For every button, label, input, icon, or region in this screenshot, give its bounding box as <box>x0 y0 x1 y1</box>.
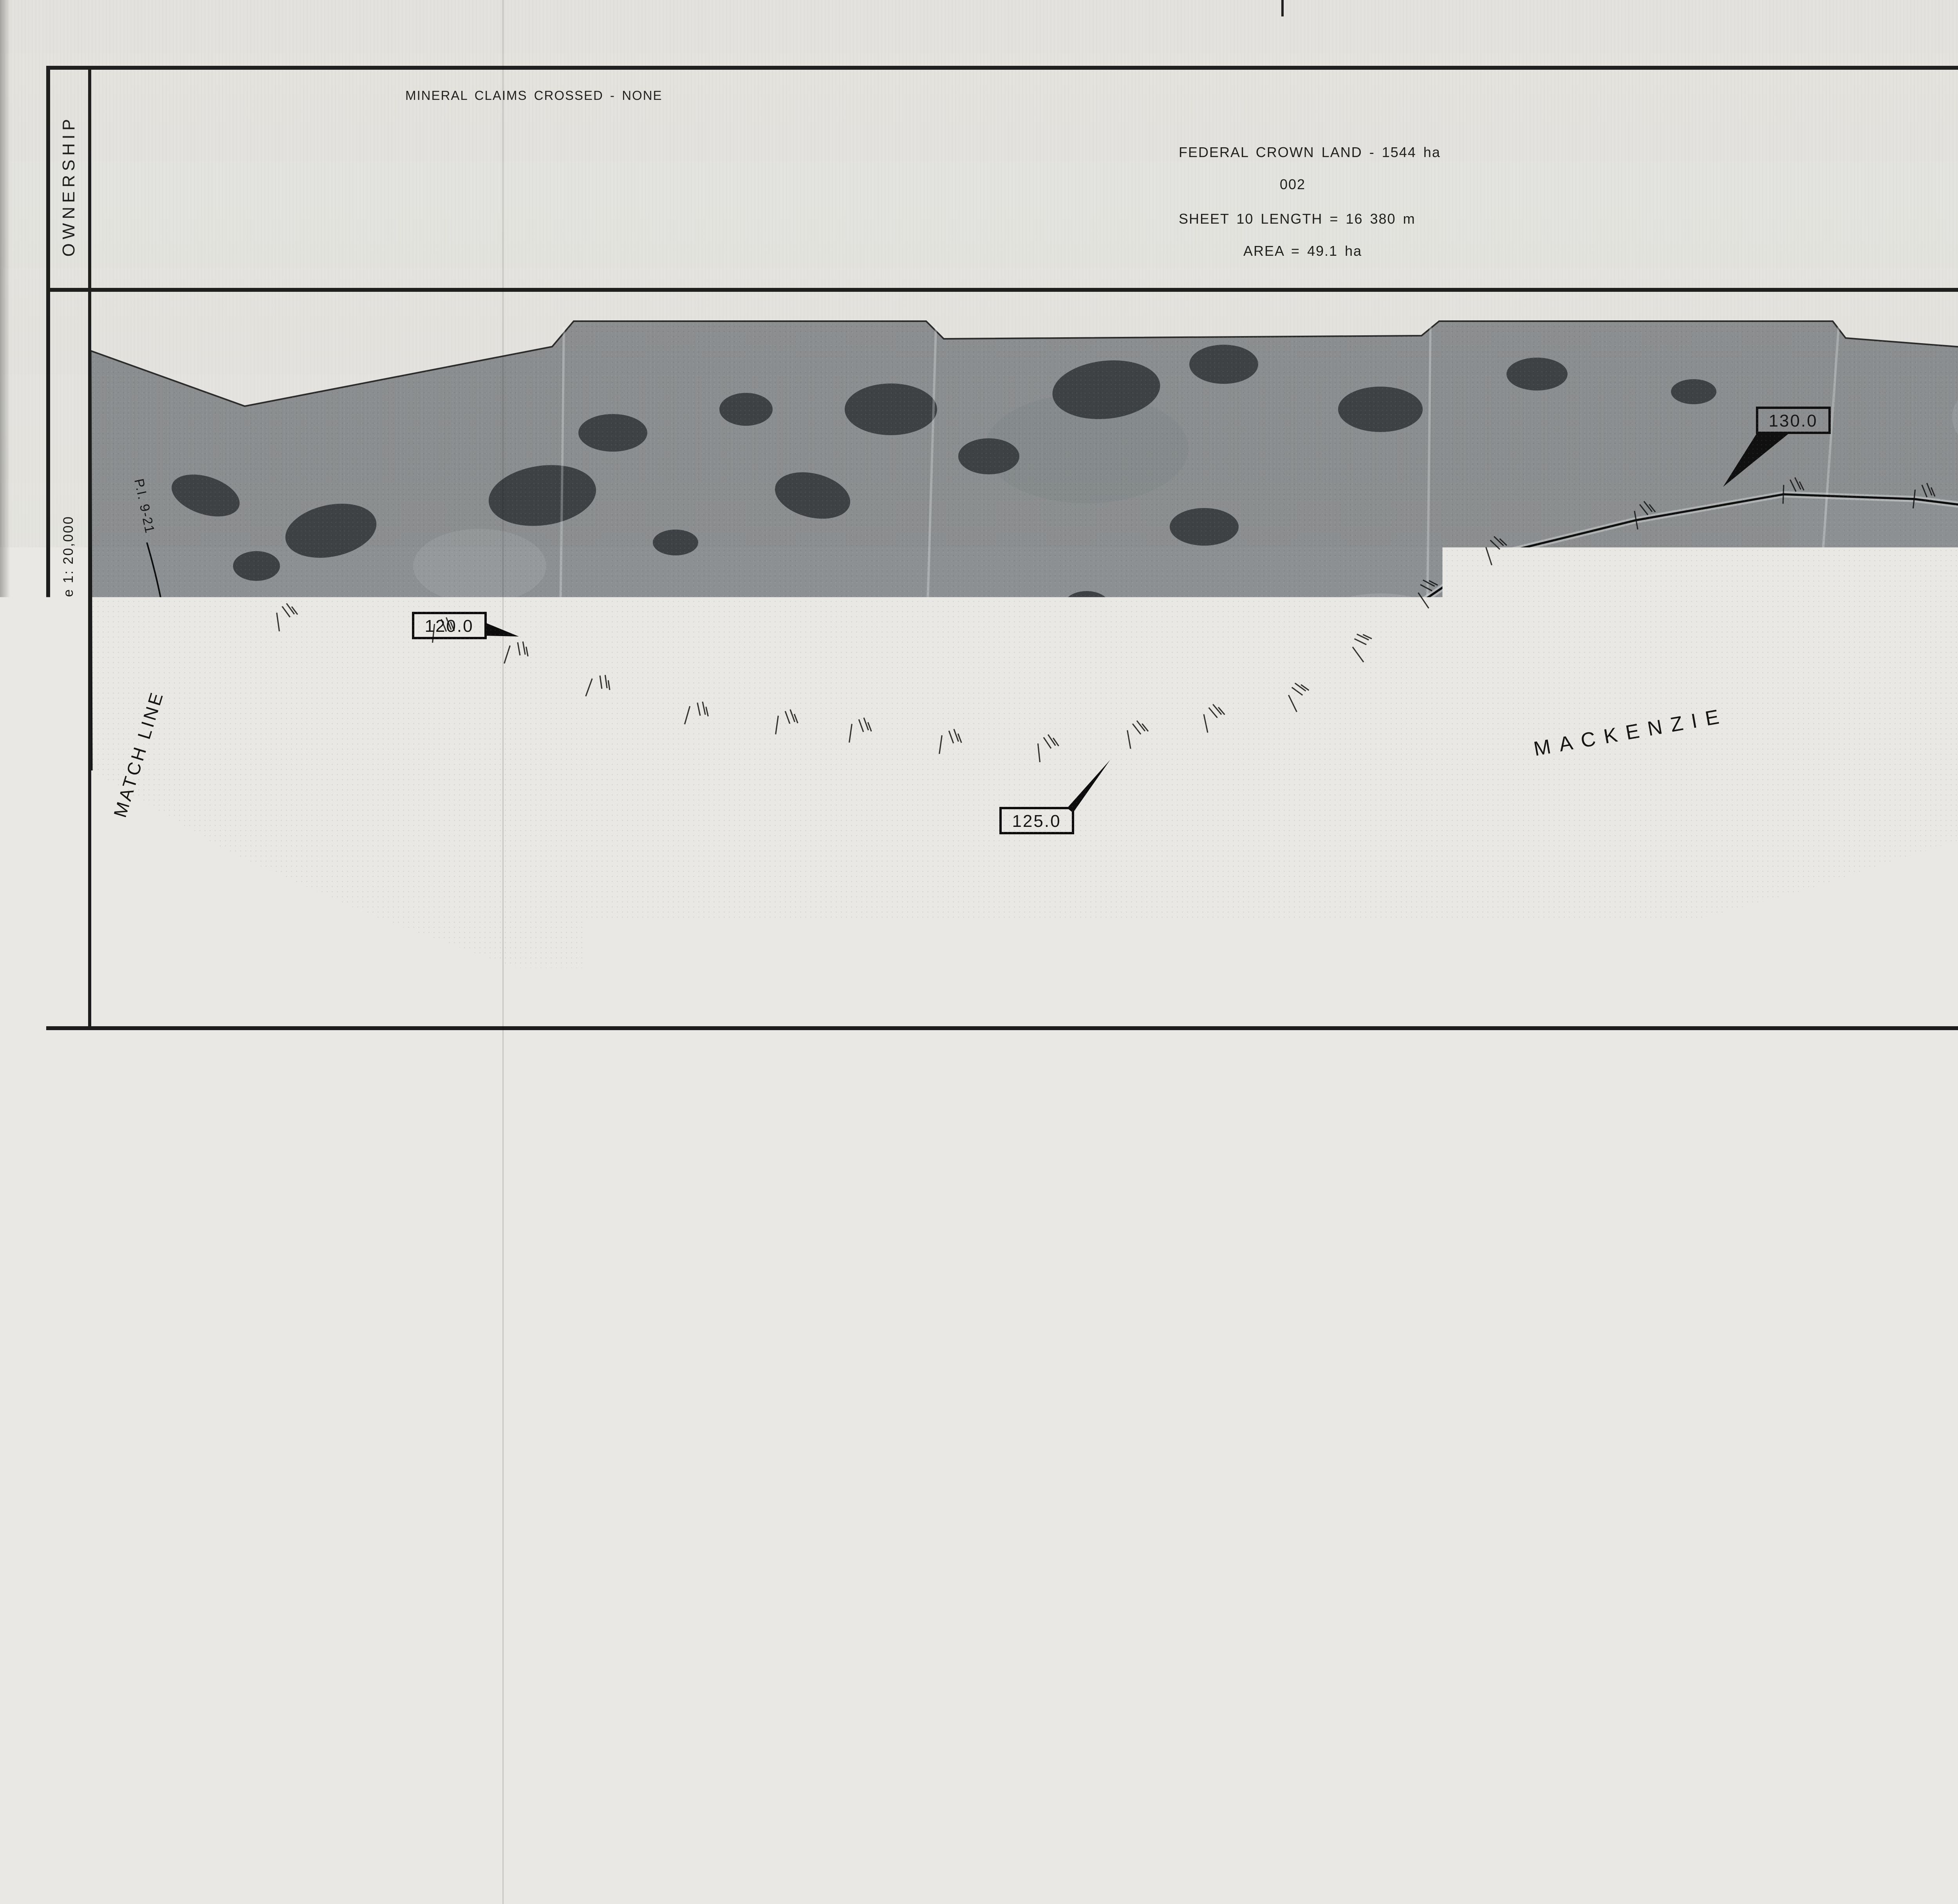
clsr-digit: 9 <box>1851 1219 1869 1251</box>
svg-text:55: 55 <box>305 1360 314 1370</box>
sidebar-divider <box>88 66 91 1030</box>
row-divider-plan <box>46 1026 1958 1030</box>
key-plan: KEY PLAN n.t.s. N <box>131 1075 388 1420</box>
ownership-label: OWNERSHIP <box>59 115 79 257</box>
parcel-number: 002 <box>1280 176 1306 193</box>
scan-edge-bottom <box>0 1888 1958 1904</box>
svg-text:C: C <box>211 1384 225 1405</box>
row-detail-title: RIGHT-OF-WAY DETAIL <box>1530 1042 1709 1058</box>
clsr-date-label: Date <box>1724 1257 1765 1277</box>
svg-text:60°: 60° <box>228 1325 245 1339</box>
aerial-photo-plan: P.I. 9-21 120.0 125.0 130.0 MACKENZIE RI… <box>88 292 1958 1030</box>
svg-text:O: O <box>169 1284 183 1304</box>
clsr-digit: 6 <box>1726 1222 1744 1254</box>
svg-text:Slave Lake: Slave Lake <box>336 1322 383 1332</box>
svg-text:U: U <box>154 1238 168 1259</box>
key-plan-border <box>133 1077 386 1418</box>
svg-text:Great Bear Lake: Great Bear Lake <box>303 1108 372 1118</box>
row-dim-15-top-label: 15 m <box>1546 1130 1559 1156</box>
frame-top <box>46 66 1958 70</box>
dept1-note: This survey and plan are satisfactory <box>1931 1796 1958 1809</box>
svg-text:ALTA: ALTA <box>295 1393 362 1416</box>
svg-text:20: 20 <box>266 1193 275 1202</box>
plan-scale-label: Scale 1: 20,000 <box>61 515 76 628</box>
svg-text:N: N <box>177 1306 190 1327</box>
dept1-name: Department of Indian Affairs and Norther… <box>1931 1717 1958 1730</box>
signing-line-4: and Necessity No. OC - 35 <box>961 1796 1142 1810</box>
clsr-date-day: 18 <box>1775 1254 1796 1276</box>
svg-text:40: 40 <box>304 1290 314 1300</box>
svg-text:Great: Great <box>346 1311 369 1321</box>
frame-bottom <box>46 1858 1958 1863</box>
signing-line-3: Holder of Certificate of Public Convenie… <box>961 1777 1246 1792</box>
clsr-stamp-date-row: Date 18 JUNE 1982 <box>1723 1251 1915 1281</box>
svg-text:SIMPSON: SIMPSON <box>217 1276 274 1287</box>
row-boundary-top-line <box>1476 1112 1762 1117</box>
clsr-date-month: JUNE <box>1806 1252 1866 1275</box>
clsr-date-year: 1982 <box>1875 1251 1922 1273</box>
copy-stamp-row-3: at Yellowknife as 1559 - 10 <box>1709 1769 1888 1788</box>
svg-text:T: T <box>363 1225 378 1252</box>
svg-text:B: B <box>193 1368 207 1389</box>
scan-edge-left <box>0 0 10 1904</box>
row-dim-15-bottom-label: 15 m <box>1546 1183 1559 1210</box>
clsr-digit: 8 <box>1893 1218 1911 1249</box>
km-post-130-label: 130.0 <box>1768 411 1817 430</box>
svg-text:Liard R: Liard R <box>220 1289 250 1299</box>
km-post-125-label: 125.0 <box>1012 812 1061 831</box>
svg-text:Lake: Lake <box>256 1407 275 1416</box>
centre-line-symbol: C <box>1732 1151 1745 1169</box>
signing-line-2: Interprovincial Pipe Line ( NW ) LTD. <box>961 1759 1208 1774</box>
svg-text:10: 10 <box>264 1137 273 1147</box>
area-note: AREA = 49.1 ha <box>1243 243 1362 259</box>
copy-stamp-row-1: A Copy of this plan is filed <box>1707 1719 1886 1738</box>
copy-stamp-text: in the <box>1708 1747 1743 1763</box>
svg-text:50: 50 <box>305 1334 314 1343</box>
svg-text:NORMAN: NORMAN <box>241 1098 295 1109</box>
svg-text:1: 1 <box>213 1107 218 1116</box>
row-dim-30-label: 30 m <box>1510 1158 1525 1188</box>
copy-stamp-text: Office <box>1835 1745 1871 1760</box>
registration-tick <box>1281 0 1284 16</box>
signing-line-1: Signing on behalf of <box>961 1741 1095 1756</box>
km-post-120-label: 120.0 <box>424 617 473 636</box>
copy-stamp-filled: filed <box>1842 1719 1884 1737</box>
key-plan-title: KEY PLAN n.t.s. <box>175 1082 282 1095</box>
dept1-city: Ottawa <box>1931 1750 1958 1763</box>
copy-stamp-row-2: in the Land Titles Office <box>1708 1744 1887 1763</box>
svg-text:N: N <box>291 1171 309 1198</box>
row-detail-subtitle: NOT TO SCALE <box>1569 1067 1670 1081</box>
row-boundary-bottom-label: R.O.W. Boundary <box>1600 1236 1696 1249</box>
dept1-city-row: Ottawa September 9 , 1982 <box>1931 1741 1958 1765</box>
crown-land-note: FEDERAL CROWN LAND - 1544 ha <box>1179 144 1441 161</box>
proponent-signature-loop <box>977 1662 1042 1774</box>
dept1-re: Re : Section 43 Canada Lands Surveys Act <box>1931 1772 1958 1785</box>
row-boundary-top-arrow <box>1704 1098 1726 1111</box>
plan-label: PLAN <box>55 741 82 818</box>
clsr-digit: 1 <box>1809 1220 1828 1252</box>
clsr-stamp-title: CANADA LANDS SURVEYS RECORDS <box>1722 1197 1913 1221</box>
row-divider-ownership <box>46 288 1958 292</box>
svg-text:K: K <box>161 1261 175 1282</box>
copy-stamp-filled: Land Titles <box>1746 1745 1832 1764</box>
copy-stamp-text: A Copy of this plan is <box>1707 1720 1839 1738</box>
svg-text:Y: Y <box>148 1215 160 1236</box>
survey-plan-sheet: OWNERSHIP MINERAL CLAIMS CROSSED - NONE … <box>0 0 1958 1904</box>
row-centre-line-b <box>1580 1168 1762 1170</box>
row-boundary-top-label: R.O.W. Boundary <box>1600 1091 1696 1104</box>
svg-text:WELLS: WELLS <box>249 1108 291 1119</box>
ownership-sidebar: OWNERSHIP <box>50 94 87 278</box>
clsr-stamp: CANADA LANDS SURVEYS RECORDS 6 8 1 9 8 D… <box>1711 1188 1927 1308</box>
plan-sidebar: PLAN <box>50 662 87 897</box>
frame-left <box>46 66 50 1863</box>
film-splice-line <box>502 0 504 1904</box>
clsr-digit: 8 <box>1768 1221 1786 1253</box>
mineral-claims-note: MINERAL CLAIMS CROSSED - NONE <box>405 88 663 103</box>
svg-text:FORT: FORT <box>228 1266 261 1277</box>
svg-text:W: W <box>330 1199 353 1226</box>
svg-text:Zama: Zama <box>253 1397 276 1407</box>
pi-point <box>163 632 170 639</box>
row-pipeline-label: PIPELINE <box>1658 1151 1728 1166</box>
sheet-length-note: SHEET 10 LENGTH = 16 380 m <box>1179 211 1416 227</box>
clsr-stamp-digits: 6 8 1 9 8 <box>1723 1218 1914 1255</box>
plan-scale-sidebar: Scale 1: 20,000 <box>53 462 84 682</box>
copy-filed-stamp: A Copy of this plan is filed in the Land… <box>1694 1705 1900 1810</box>
